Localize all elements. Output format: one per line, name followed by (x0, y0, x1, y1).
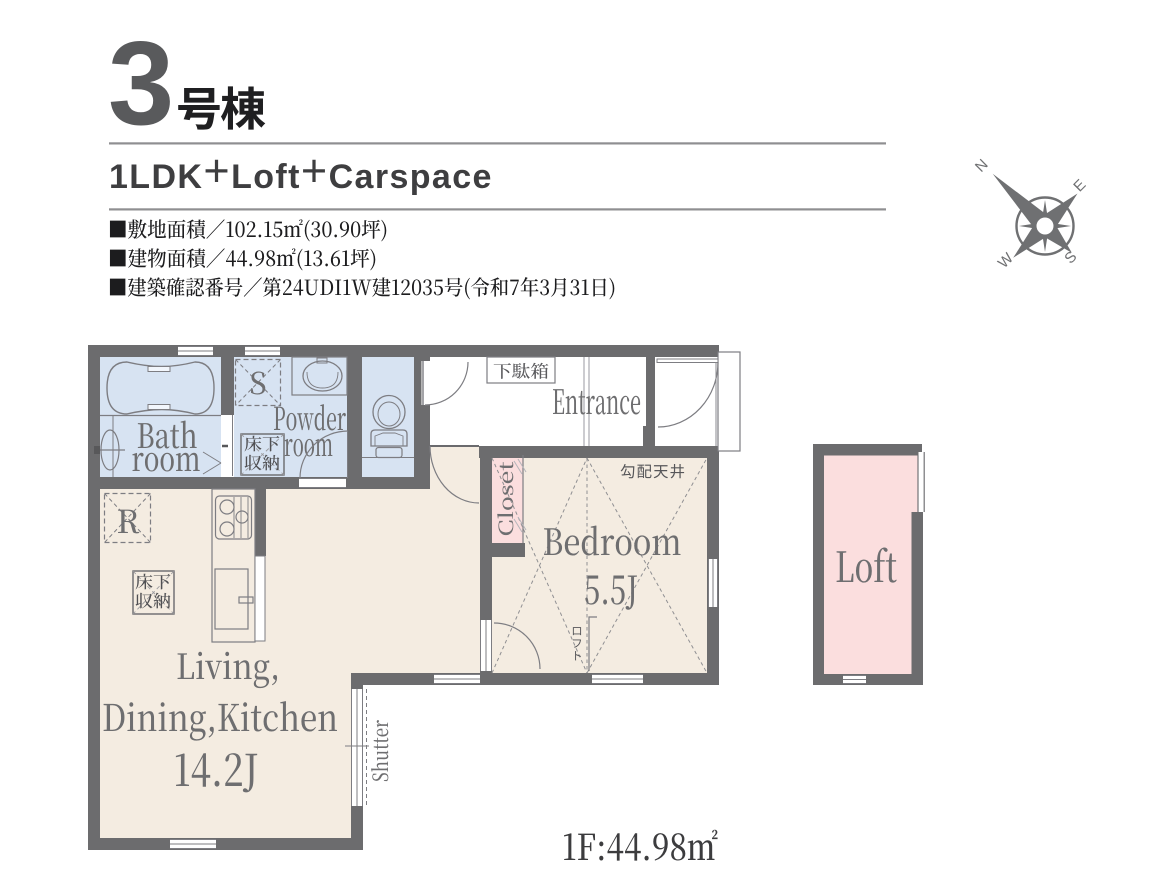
svg-text:3: 3 (108, 17, 174, 150)
